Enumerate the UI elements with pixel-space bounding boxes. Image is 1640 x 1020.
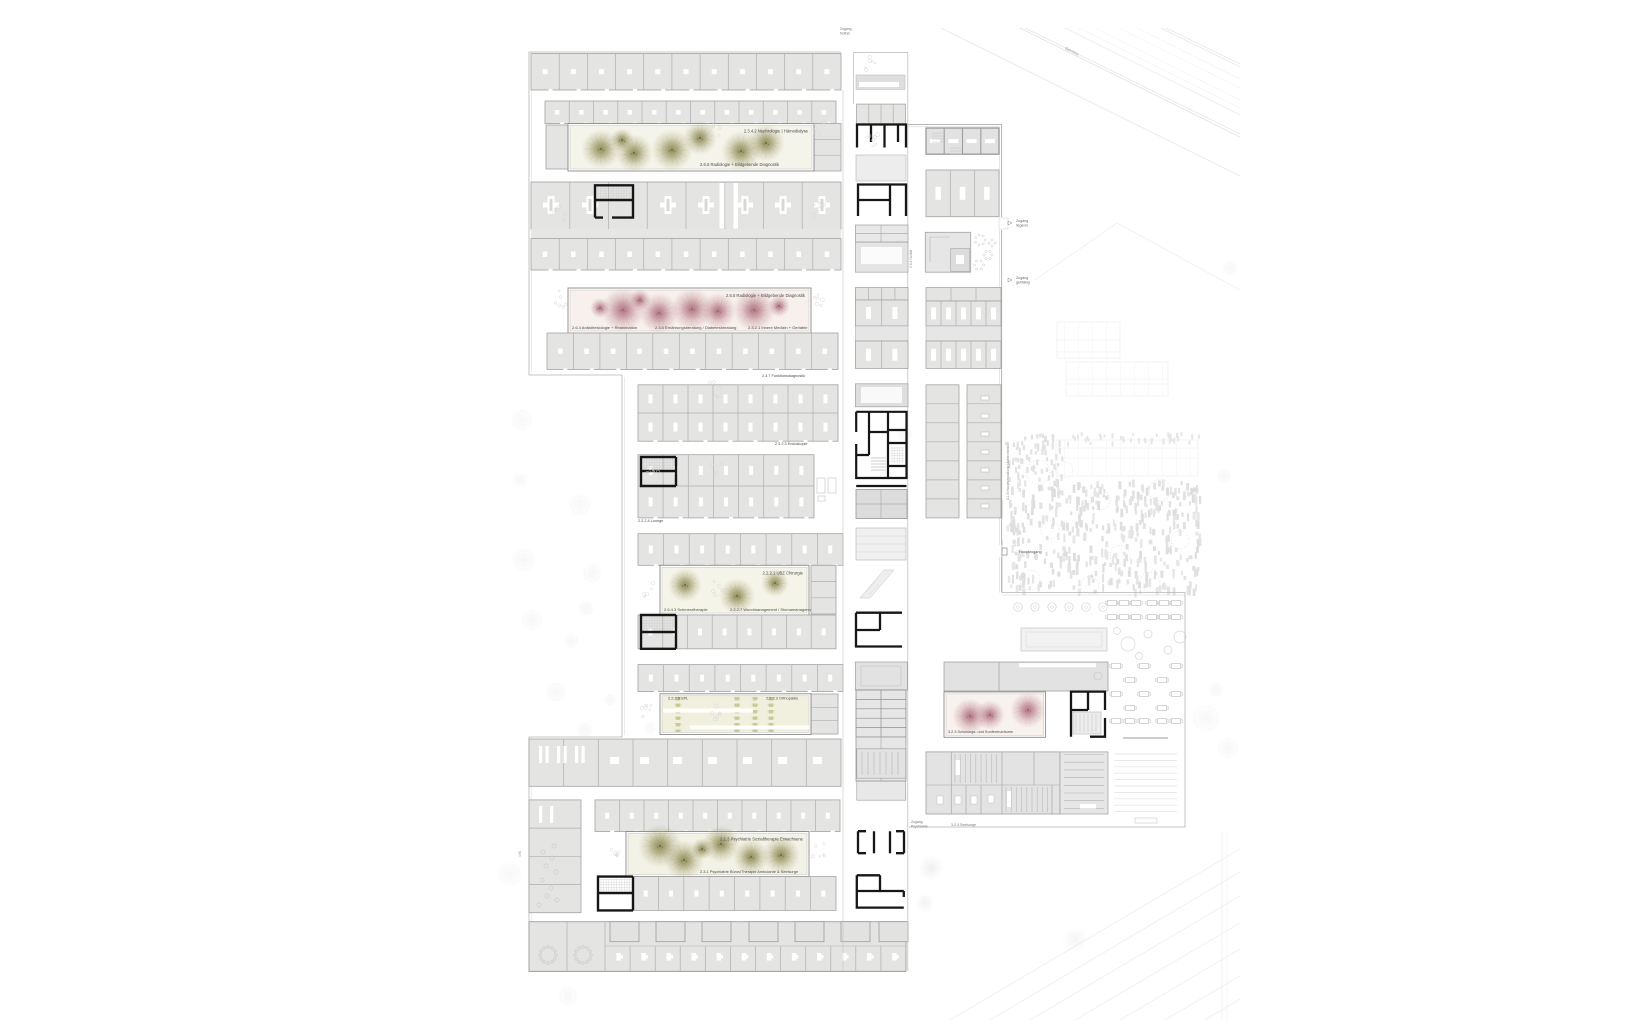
svg-text:2.2.2.5 SPL: 2.2.2.5 SPL bbox=[668, 696, 689, 701]
svg-text:2.2.2.3 Orthopädie: 2.2.2.3 Orthopädie bbox=[766, 696, 798, 701]
svg-text:3.2.3 Schulungs- und Konferenz: 3.2.3 Schulungs- und Konferenzräume bbox=[948, 730, 1013, 734]
svg-text:Hauptzugang: Hauptzugang bbox=[1019, 550, 1042, 554]
svg-text:3.1.5 Hauptverwaltung | Admini: 3.1.5 Hauptverwaltung | Administration bbox=[1006, 442, 1010, 500]
svg-text:Psychiatrie: Psychiatrie bbox=[911, 825, 928, 829]
svg-text:Zugang: Zugang bbox=[840, 27, 852, 31]
svg-text:2.6.2 Notfall: 2.6.2 Notfall bbox=[909, 250, 913, 268]
svg-text:Zugang: Zugang bbox=[911, 820, 923, 824]
svg-text:2.6.5 Radiologie + Bildgebende: 2.6.5 Radiologie + Bildgebende Diagnosti… bbox=[700, 162, 780, 167]
svg-text:2.2.2.7 Wundmanagement / Stoma: 2.2.2.7 Wundmanagement / Stomamanagement bbox=[730, 607, 816, 612]
svg-text:2.3.2.1 Innere Medizin + Geria: 2.3.2.1 Innere Medizin + Geriatrie bbox=[748, 325, 808, 330]
svg-text:2.6.4 Anästhesiologie + Reanim: 2.6.4 Anästhesiologie + Reanimation bbox=[572, 325, 637, 330]
svg-text:2.6.5 Radiologie + Bildgebende: 2.6.5 Radiologie + Bildgebende Diagnosti… bbox=[726, 293, 806, 298]
svg-text:2.3.2.3 Endoskopie: 2.3.2.3 Endoskopie bbox=[775, 442, 808, 446]
svg-text:2.2.2.1 UBZ Chirurgie: 2.2.2.1 UBZ Chirurgie bbox=[763, 570, 804, 575]
svg-text:liegend: liegend bbox=[1016, 224, 1028, 228]
svg-text:2.6.4.3 Schmerztherapie: 2.6.4.3 Schmerztherapie bbox=[664, 607, 708, 612]
svg-text:Zugang: Zugang bbox=[1016, 219, 1028, 223]
svg-text:2.2.2.4 Lounge: 2.2.2.4 Lounge bbox=[638, 519, 663, 523]
svg-text:2.1.3 Psychiatrie Sozialtherap: 2.1.3 Psychiatrie Sozialtherapie Erwachs… bbox=[720, 837, 804, 842]
svg-text:gehfähig: gehfähig bbox=[1016, 281, 1030, 285]
svg-text:3.2.3 Seelsorge: 3.2.3 Seelsorge bbox=[951, 823, 976, 827]
svg-text:2.3.7 Funktionsdiagnostik: 2.3.7 Funktionsdiagnostik bbox=[762, 374, 805, 378]
svg-text:2.3.4.2 Nephrologie | Hämodial: 2.3.4.2 Nephrologie | Hämodialyse bbox=[744, 129, 809, 134]
svg-text:Notfall: Notfall bbox=[840, 32, 850, 36]
svg-text:2.3.6 Ernährungsberatung / Dia: 2.3.6 Ernährungsberatung / Diabetesberat… bbox=[655, 325, 736, 330]
svg-text:4.80: 4.80 bbox=[518, 851, 522, 857]
svg-text:Zugang: Zugang bbox=[1016, 276, 1028, 280]
svg-text:2.3.1 Psychiatrie Büros/Therap: 2.3.1 Psychiatrie Büros/Therapie Ambulan… bbox=[700, 869, 798, 874]
